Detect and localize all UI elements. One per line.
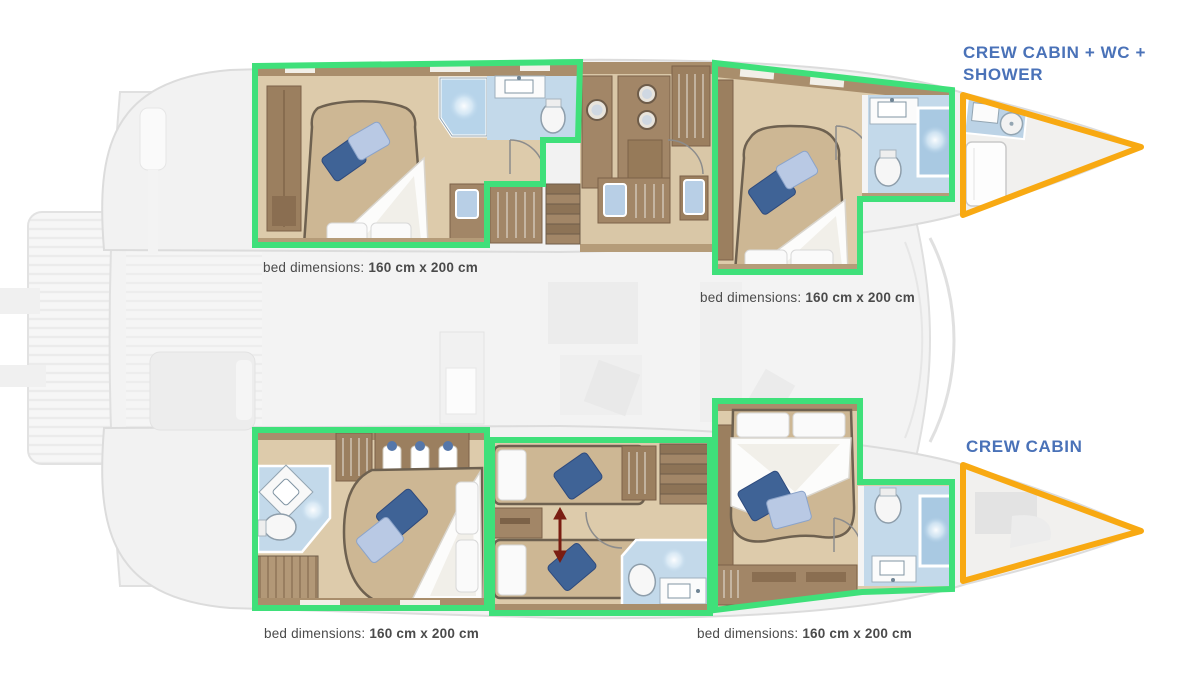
bathroom-bottom-middle [622, 540, 710, 606]
pillow-white-icon [737, 413, 789, 437]
pillow-white-icon [498, 545, 526, 595]
bed-icon [344, 468, 482, 604]
stern-detail [0, 365, 46, 387]
shower-icon [918, 108, 952, 176]
wardrobe-icon [490, 186, 542, 243]
bed-dimensions-caption: bed dimensions:160 cm x 200 cm [264, 626, 479, 641]
plank-floor [258, 556, 318, 604]
shower-icon [920, 496, 952, 566]
pillow-white-icon [456, 540, 478, 592]
bathroom-bottom-right [858, 486, 952, 586]
mirror-icon [684, 180, 704, 214]
bed-dimensions-caption: bed dimensions:160 cm x 200 cm [263, 260, 478, 275]
bed-icon [731, 410, 854, 542]
crew-cabin-wc-label: CREW CABIN + WC + SHOWER [963, 42, 1168, 86]
mirror-icon [456, 190, 478, 218]
bed-icon [304, 101, 428, 245]
yacht-floor-plan: CREW CABIN + WC + SHOWER CREW CABIN bed … [0, 0, 1200, 679]
toilet-icon [875, 154, 901, 186]
caption-prefix: bed dimensions: [264, 626, 365, 641]
bathroom-top-right [862, 95, 952, 199]
caption-value: 160 cm x 200 cm [368, 260, 478, 275]
shower-icon [300, 497, 326, 523]
bed-icon [735, 126, 848, 272]
shower-icon [661, 547, 687, 573]
caption-prefix: bed dimensions: [263, 260, 364, 275]
pillow-white-icon [498, 450, 526, 500]
caption-prefix: bed dimensions: [697, 626, 798, 641]
wardrobe-icon [622, 446, 656, 500]
bathroom-top-left [487, 76, 578, 140]
mirror-icon [604, 184, 626, 216]
wardrobe-icon [672, 66, 710, 146]
pillow-white-icon [456, 482, 478, 534]
crew-bed-icon [966, 142, 1006, 206]
bed-dimensions-caption: bed dimensions:160 cm x 200 cm [697, 626, 912, 641]
caption-prefix: bed dimensions: [700, 290, 801, 305]
caption-value: 160 cm x 200 cm [369, 626, 479, 641]
toilet-icon [264, 514, 296, 540]
cabin-bottom-left [255, 430, 487, 608]
stern-detail [0, 288, 40, 314]
cabin-bottom-middle [492, 440, 710, 613]
caption-value: 160 cm x 200 cm [802, 626, 912, 641]
stairs-icon [660, 444, 708, 504]
pillow-white-icon [793, 413, 845, 437]
bed-dimensions-caption: bed dimensions:160 cm x 200 cm [700, 290, 915, 305]
caption-value: 160 cm x 200 cm [805, 290, 915, 305]
foredeck-edge [930, 238, 954, 442]
floor-plan-svg [0, 0, 1200, 679]
shower-icon [440, 78, 487, 136]
stairs-icon [546, 184, 580, 244]
crew-cabin-label: CREW CABIN [966, 436, 1186, 458]
